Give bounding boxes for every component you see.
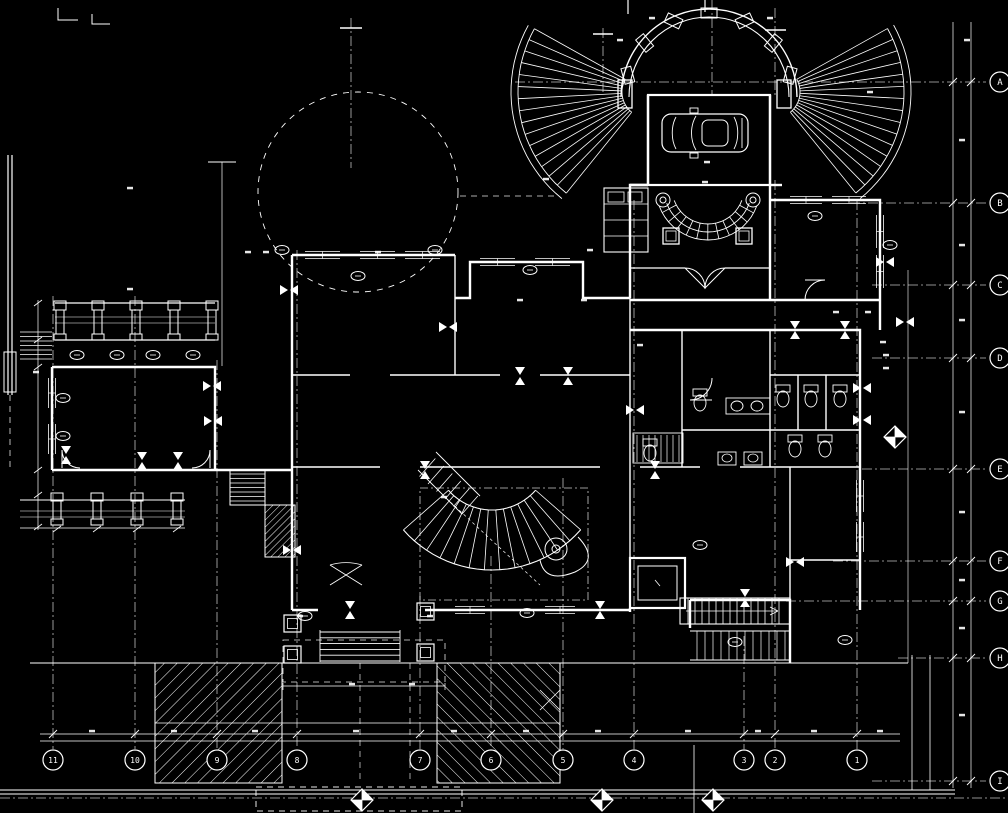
grid-bubble-col-1: 1 xyxy=(847,750,867,770)
grid-bubble-row-E: E xyxy=(990,459,1008,479)
grid-bubble-row-B: B xyxy=(990,193,1008,213)
svg-text:7: 7 xyxy=(418,756,423,765)
grid-bubble-row-G: G xyxy=(990,591,1008,611)
svg-text:5: 5 xyxy=(561,756,566,765)
grid-bubble-col-9: 9 xyxy=(207,750,227,770)
svg-text:2: 2 xyxy=(773,756,778,765)
section-marker-1 xyxy=(351,789,373,811)
grid-bubble-row-F: F xyxy=(990,551,1008,571)
door-swings xyxy=(62,268,825,585)
svg-text:8: 8 xyxy=(295,756,300,765)
svg-text:I: I xyxy=(997,777,1002,787)
grid-bubble-row-I: I xyxy=(990,771,1008,791)
grid-bubble-col-3: 3 xyxy=(734,750,754,770)
grid-bubble-col-5: 5 xyxy=(553,750,573,770)
svg-text:3: 3 xyxy=(742,756,747,765)
grid-bubble-col-6: 6 xyxy=(481,750,501,770)
site-elements xyxy=(4,0,786,470)
grand-staircase xyxy=(403,452,588,585)
svg-text:F: F xyxy=(997,557,1002,567)
grid-bubble-row-H: H xyxy=(990,648,1008,668)
bathroom-fixtures xyxy=(643,385,847,465)
svg-text:11: 11 xyxy=(48,756,58,765)
svg-text:D: D xyxy=(997,354,1002,364)
svg-text:G: G xyxy=(997,597,1002,607)
grid-bubble-row-D: D xyxy=(990,348,1008,368)
section-marker-2 xyxy=(591,789,613,811)
svg-text:H: H xyxy=(997,654,1002,664)
grid-bubble-col-11: 11 xyxy=(43,750,63,770)
fan-stairs xyxy=(511,25,911,199)
svg-text:C: C xyxy=(997,281,1002,291)
section-marker-3 xyxy=(702,789,724,811)
left-veranda xyxy=(20,301,218,532)
grid-bubble-col-7: 7 xyxy=(410,750,430,770)
svg-text:B: B xyxy=(997,199,1002,209)
service-stair xyxy=(680,598,790,660)
svg-text:6: 6 xyxy=(489,756,494,765)
grid-bubble-col-10: 10 xyxy=(125,750,145,770)
window-symbols xyxy=(49,197,884,614)
grid-bubble-col-2: 2 xyxy=(765,750,785,770)
svg-text:10: 10 xyxy=(130,756,140,765)
grid-bubble-row-A: A xyxy=(990,72,1008,92)
car-icon xyxy=(662,108,748,158)
grid-bubble-col-4: 4 xyxy=(624,750,644,770)
entry-steps xyxy=(656,193,760,244)
walls xyxy=(52,95,880,663)
floor-plan-canvas: ABCDEFGHI1110987654321 xyxy=(0,0,1008,813)
floor-plan-drawing: ABCDEFGHI1110987654321 xyxy=(0,0,1008,813)
svg-text:1: 1 xyxy=(855,756,860,765)
grid-bubble-row-C: C xyxy=(990,275,1008,295)
svg-text:E: E xyxy=(997,465,1002,475)
grid-bubble-col-8: 8 xyxy=(287,750,307,770)
section-marker-4 xyxy=(884,426,906,448)
svg-text:A: A xyxy=(997,78,1003,88)
svg-text:9: 9 xyxy=(215,756,220,765)
svg-text:4: 4 xyxy=(632,756,637,765)
